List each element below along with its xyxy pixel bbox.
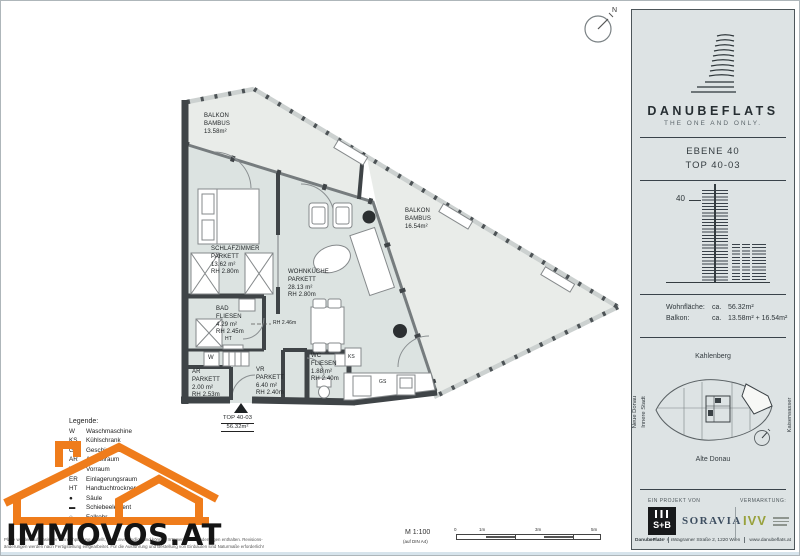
- label-schlafzimmer: SCHLAFZIMMERPARKETT13.62 m²RH 2.80m: [211, 246, 260, 277]
- divider: [640, 294, 786, 295]
- site-map: [650, 366, 778, 452]
- level-label: EBENE 40: [632, 146, 794, 157]
- label-w: W: [208, 355, 214, 363]
- north-compass-icon: N: [585, 7, 617, 42]
- label-ks: KS: [348, 354, 355, 361]
- entrance-label: TOP 40-03 56.32m²: [221, 415, 254, 432]
- ivv-subtext-lines: [773, 517, 789, 526]
- logo-divider: [735, 507, 736, 539]
- label-wohnkueche: WOHNKÜCHEPARKETT28.13 m²RH 2.80m: [288, 269, 329, 300]
- map-label-west-1: Neue Donau: [632, 386, 638, 438]
- stove: [353, 376, 371, 396]
- map-label-west-2: Innere Stadt: [641, 386, 647, 438]
- label-ar: ARPARKETT2.00 m²RH 2.53m: [192, 369, 220, 400]
- project-header: EIN PROJEKT VON: [648, 498, 700, 504]
- map-label-south: Alte Donau: [632, 456, 794, 463]
- sb-bars-icon: [655, 510, 670, 518]
- sidebar-footer: DanubeFlats Wagramer Straße 2, 1220 Wien…: [632, 537, 794, 543]
- danubeflats-tower-icon: [689, 32, 739, 102]
- divider: [640, 489, 786, 490]
- footer-address: Wagramer Straße 2, 1220 Wien: [673, 538, 741, 543]
- label-rh-note: RH 2.46m: [273, 320, 296, 327]
- unit-label: TOP 40-03: [632, 160, 794, 171]
- marketing-header: VERMARKTUNG:: [740, 498, 786, 504]
- ground-line: [666, 282, 770, 283]
- label-ht: HT: [225, 336, 232, 343]
- area-row-wohnflaeche: Wohnfläche:ca.56.32m²: [666, 304, 754, 311]
- map-label-north: Kahlenberg: [632, 353, 794, 360]
- footer-brand: DanubeFlats: [635, 538, 664, 543]
- area-row-balkon: Balkon:ca.13.58m² + 16.54m²: [666, 315, 787, 322]
- soravia-logo: SORAVIA: [682, 515, 742, 527]
- label-bad: BADFLIESEN4.29 m²RH 2.45m: [216, 306, 244, 337]
- annex-building: [732, 244, 766, 282]
- tower-level-number: 40: [676, 194, 685, 203]
- label-gs: GS: [379, 379, 386, 386]
- page-edge: [1, 552, 800, 556]
- tower-level-tick: [689, 200, 701, 201]
- divider: [640, 337, 786, 338]
- label-balkon-left: BALKONBAMBUS13.58m²: [204, 113, 230, 136]
- label-vr: VRPARKETT6.40 m²RH 2.40m: [256, 367, 284, 398]
- label-wc: WCFLIESEN1.88 m²RH 2.40m: [311, 353, 339, 384]
- label-balkon-right: BALKONBAMBUS16.54m²: [405, 208, 431, 231]
- dining-table: [311, 307, 344, 344]
- brand-name: DANUBEFLATS: [632, 104, 794, 118]
- map-label-east: Kaiserwasser: [787, 388, 793, 442]
- tower-mast: [714, 184, 716, 282]
- brand-tagline: THE ONE AND ONLY.: [632, 120, 794, 127]
- chair: [328, 299, 341, 308]
- immovos-watermark: IMMOVOS.AT: [6, 518, 222, 552]
- chair: [328, 343, 341, 352]
- entrance-arrow: [234, 403, 248, 413]
- unit-location-highlight: [742, 384, 772, 414]
- footer-website: www.danubeflats.at: [749, 538, 791, 543]
- divider: [640, 137, 786, 138]
- sidebar: DANUBEFLATS THE ONE AND ONLY. EBENE 40 T…: [631, 9, 795, 550]
- floorplan-page: N BALKONBAMBUS13.58m² BALKONBAMBUS16.54m…: [0, 0, 800, 556]
- chair: [313, 343, 326, 352]
- shelf: [223, 352, 249, 366]
- chair: [313, 299, 326, 308]
- towel-dryer: [223, 345, 243, 349]
- sb-gruppe-logo: S+B: [648, 507, 676, 535]
- ivv-logo: IVV: [743, 513, 767, 528]
- north-label: N: [612, 7, 617, 14]
- divider: [640, 180, 786, 181]
- map-compass-icon: [755, 429, 771, 446]
- legend-title: Legende:: [69, 418, 137, 425]
